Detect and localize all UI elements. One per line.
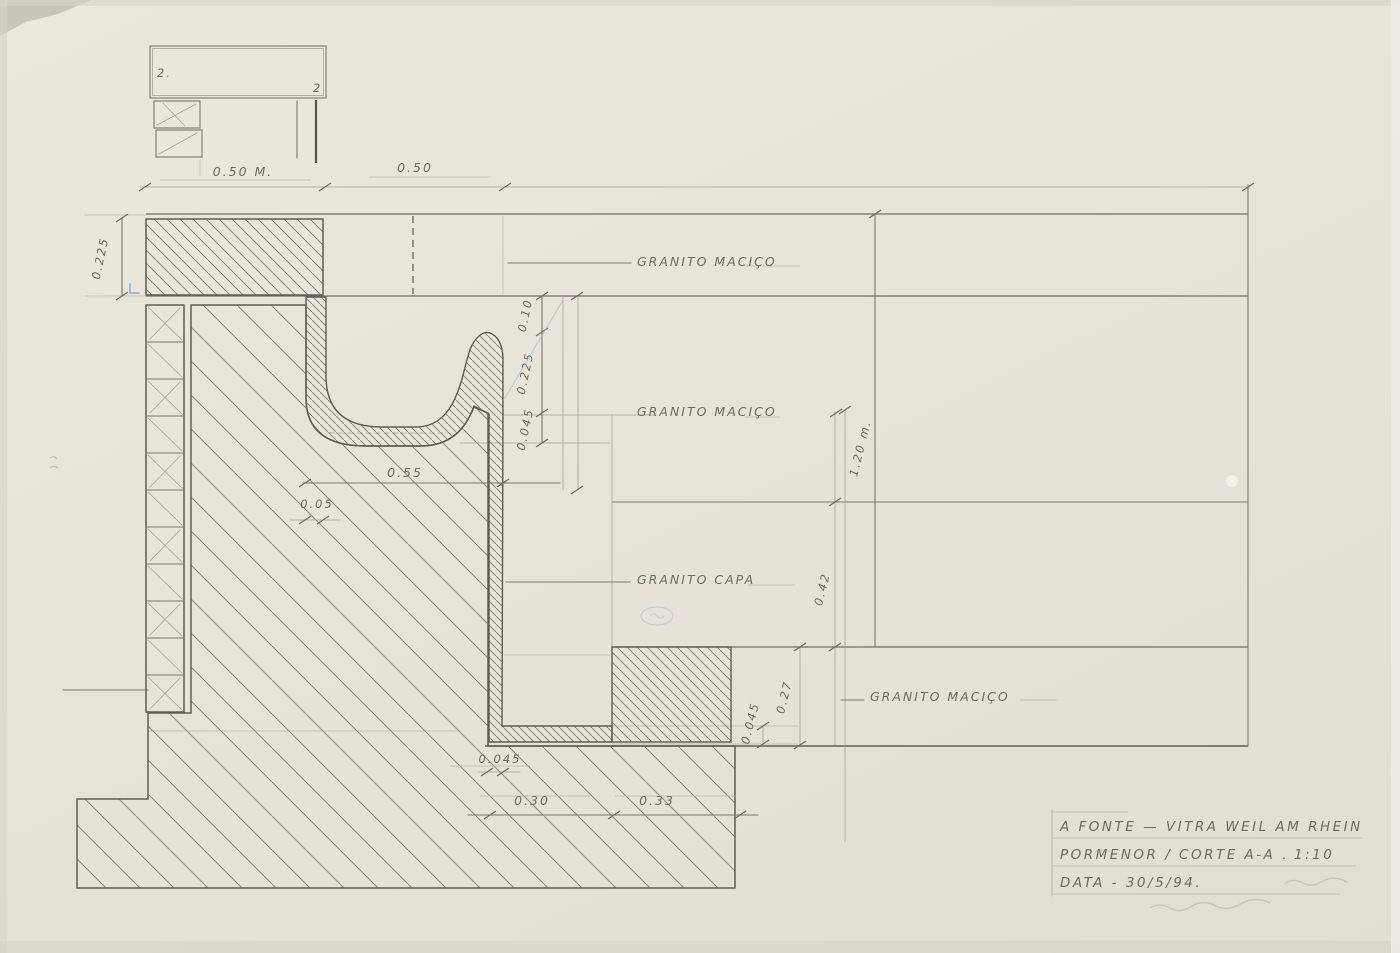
title-block: A FONTE — VITRA WEIL AM RHEIN PORMENOR /…	[1052, 810, 1363, 911]
blue-diagonal-mark	[505, 300, 563, 398]
dim-label-0045-lower: 0.045	[479, 752, 522, 766]
sketch-leg-diagonal	[157, 104, 196, 125]
coping-block-section	[146, 219, 323, 295]
thumbnail-sketch: 2. 2	[150, 46, 326, 176]
dim-label-0045-upper: 0.045	[514, 407, 537, 452]
foundation-mass-section	[77, 305, 735, 888]
top-edge	[0, 0, 1400, 6]
dim-label-027: 0.27	[773, 679, 795, 715]
dim-label-0045-right: 0.045	[738, 701, 762, 746]
sketch-slab-inner	[153, 49, 324, 96]
sketch-mark-left: 2.	[157, 66, 172, 80]
label-granito-macico-bottom: GRANITO MACIÇO	[870, 689, 1010, 704]
dim-label-030: 0.30	[514, 793, 550, 808]
title-line1: A FONTE — VITRA WEIL AM RHEIN	[1059, 819, 1363, 835]
dim-label-005: 0.05	[300, 497, 334, 511]
dim-label-042: 0.42	[811, 571, 833, 607]
title-line3: DATA - 30/5/94.	[1060, 875, 1202, 891]
dim-label-033: 0.33	[639, 793, 675, 808]
sketch-slab-outline	[150, 46, 326, 98]
label-granito-capa: GRANITO CAPA	[637, 572, 755, 587]
blue-corner-mark	[130, 284, 139, 293]
dim-label-050: 0.50	[397, 160, 433, 175]
fountain-section-drawing: 2. 2	[0, 0, 1400, 953]
bottom-edge	[0, 941, 1400, 953]
dim-label-120: 1.20 m.	[846, 418, 874, 478]
dim-label-0225-left: 0.225	[89, 236, 112, 281]
dim-label-055: 0.55	[387, 465, 423, 480]
title-line2: PORMENOR / CORTE A-A .	[1060, 847, 1289, 863]
lower-granite-block-section	[612, 647, 731, 742]
left-edge	[0, 0, 7, 953]
section-masses	[77, 219, 735, 888]
dim-label-0225: 0.225	[514, 351, 537, 396]
sketch-leg-diagonal	[163, 103, 185, 126]
sketch-leg-diagonal	[159, 133, 197, 154]
sketch-mark-right: 2	[313, 81, 322, 95]
label-granito-macico-mid: GRANITO MACIÇO	[637, 404, 777, 419]
leader-lines	[506, 263, 1058, 700]
label-granito-macico-top: GRANITO MACIÇO	[637, 254, 777, 269]
paper-spot	[1226, 475, 1238, 487]
right-edge	[1391, 0, 1400, 953]
blue-circle-note	[641, 607, 673, 625]
material-labels: GRANITO MACIÇO GRANITO MACIÇO GRANITO CA…	[637, 254, 1010, 704]
margin-pencil-marks	[50, 457, 58, 468]
dim-label-050m: 0.50 M.	[213, 164, 274, 179]
dim-label-010: 0.10	[515, 297, 536, 333]
title-scale: 1:10	[1294, 847, 1334, 863]
masonry-strip	[146, 305, 184, 712]
